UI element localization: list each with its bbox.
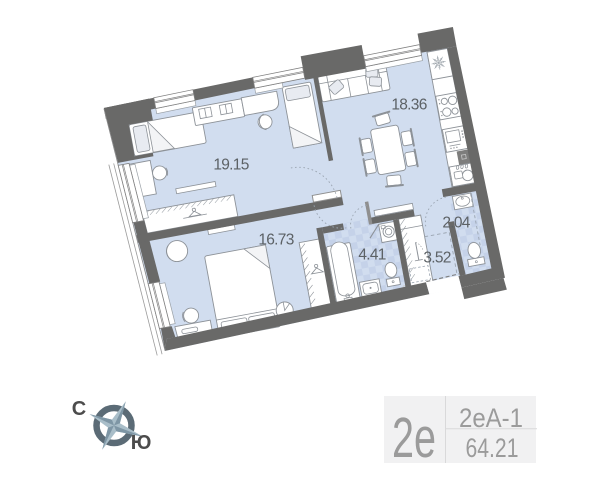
svg-text:С: С <box>72 398 86 420</box>
svg-text:2еА-1: 2еА-1 <box>459 403 523 433</box>
svg-text:2е: 2е <box>392 406 436 470</box>
svg-text:4.41: 4.41 <box>358 247 385 264</box>
svg-text:Ю: Ю <box>131 432 152 454</box>
svg-text:19.15: 19.15 <box>213 157 248 174</box>
svg-text:2.04: 2.04 <box>442 215 470 232</box>
svg-text:16.73: 16.73 <box>258 232 293 249</box>
svg-text:3.52: 3.52 <box>423 250 450 267</box>
svg-text:64.21: 64.21 <box>466 433 519 463</box>
svg-text:18.36: 18.36 <box>391 97 426 114</box>
